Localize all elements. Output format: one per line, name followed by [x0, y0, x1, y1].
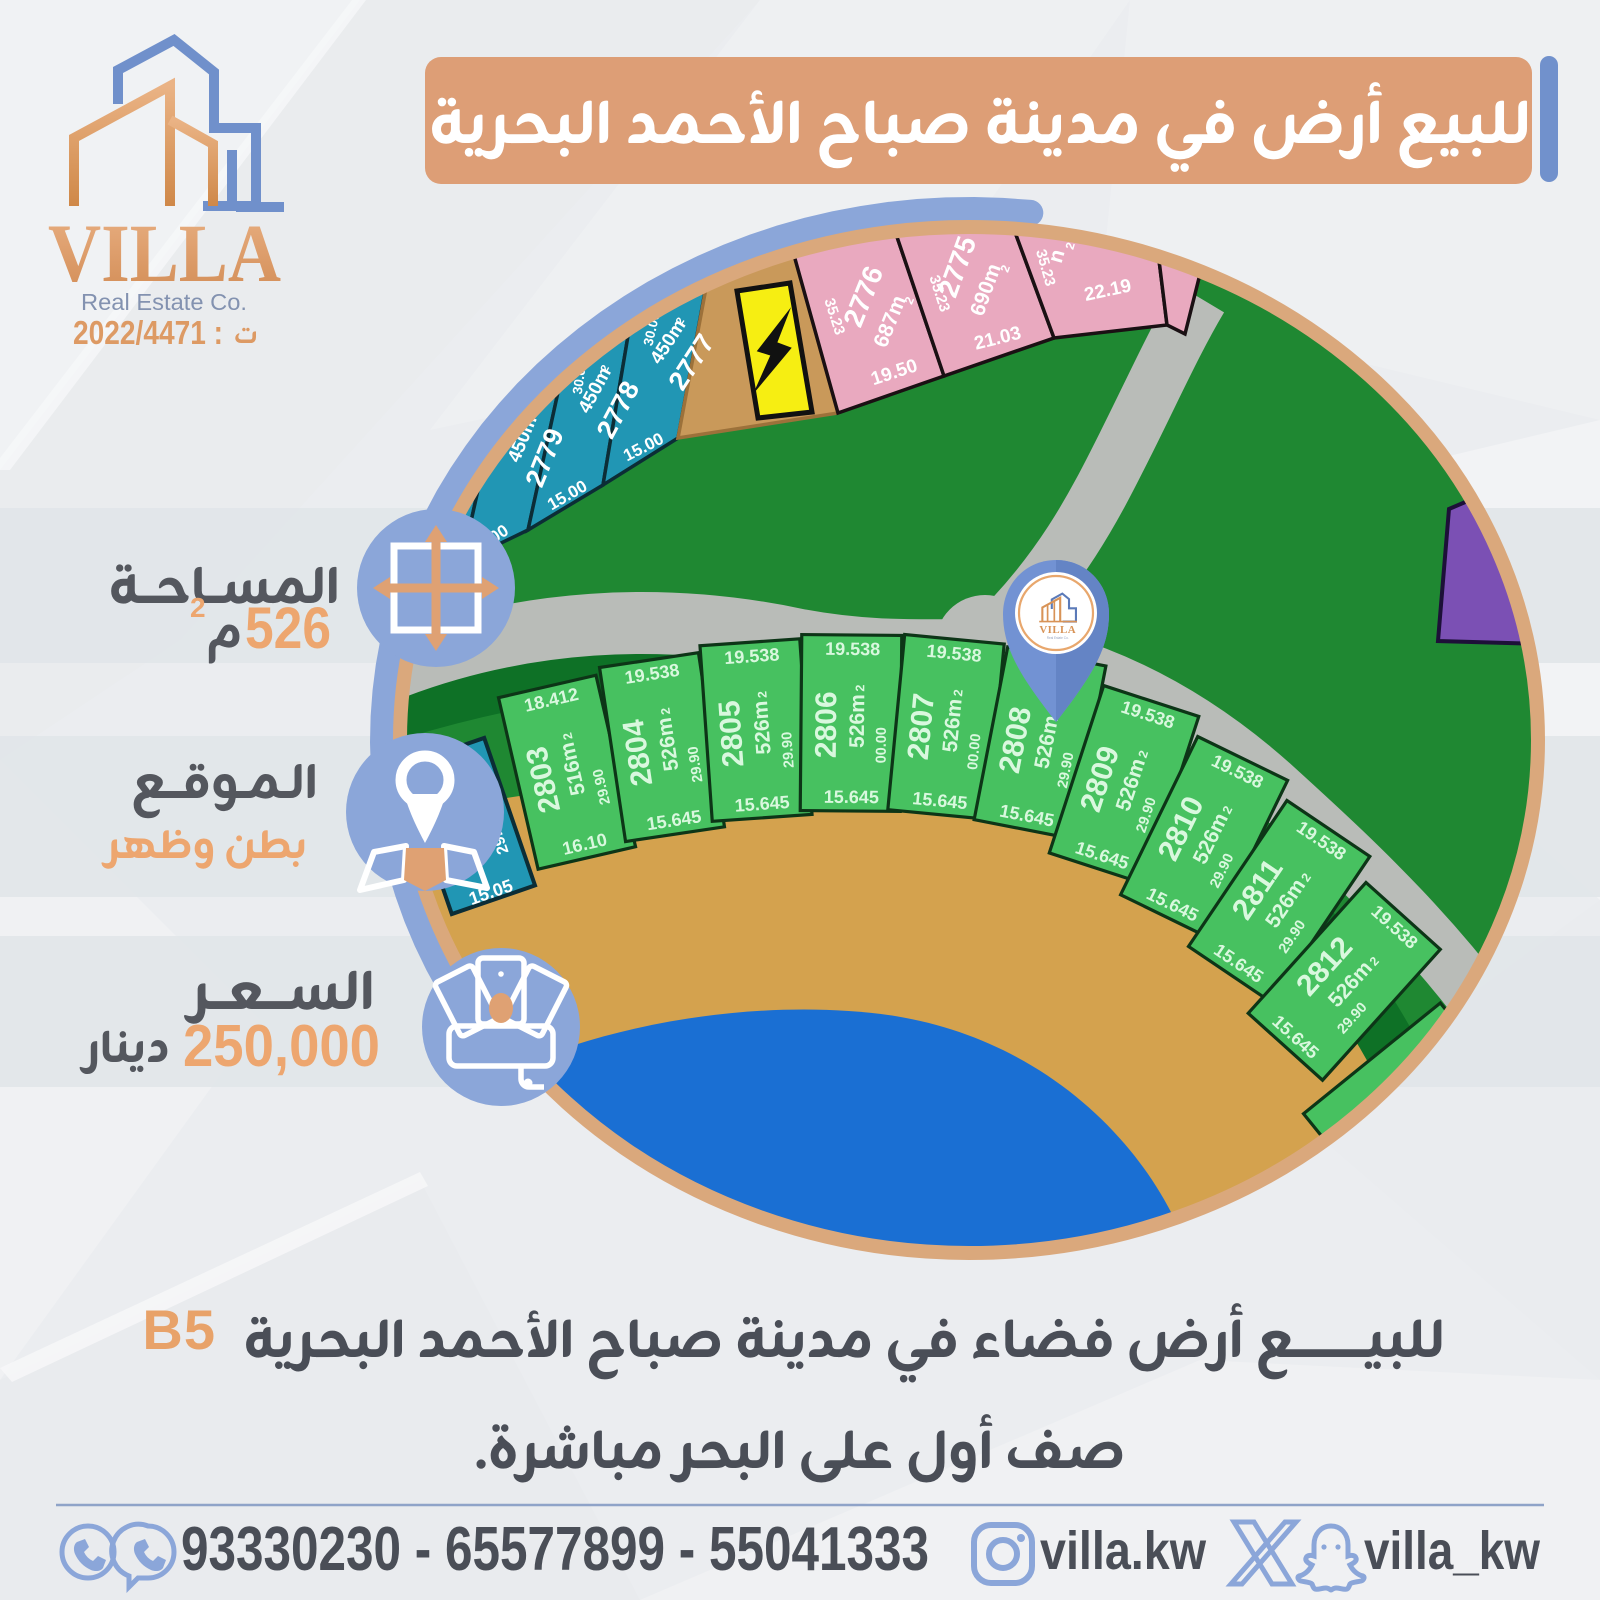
svg-text:Real Estate Co.: Real Estate Co. — [1047, 636, 1069, 640]
svg-text:526m: 526m — [846, 694, 869, 748]
svg-text:250,000: 250,000 — [183, 1013, 380, 1079]
svg-text:2: 2 — [853, 684, 867, 691]
svg-text:526m: 526m — [749, 700, 776, 755]
svg-text:VILLA: VILLA — [48, 207, 281, 299]
svg-text:B5: B5 — [142, 1298, 216, 1361]
svg-text:2806: 2806 — [810, 691, 844, 758]
svg-text:2807: 2807 — [902, 692, 941, 762]
svg-text:villa_kw: villa_kw — [1364, 1521, 1541, 1581]
svg-text:19.538: 19.538 — [724, 644, 780, 668]
svg-text:15.645: 15.645 — [824, 787, 879, 807]
svg-text:526: 526 — [245, 596, 331, 661]
svg-text:VILLA: VILLA — [1039, 624, 1076, 636]
svg-text:2: 2 — [951, 689, 966, 697]
svg-text:2022/4471 :: 2022/4471 : — [73, 314, 223, 351]
svg-text:29.90: 29.90 — [779, 731, 797, 768]
svg-text:Real Estate Co.: Real Estate Co. — [81, 289, 247, 315]
svg-text:2: 2 — [190, 592, 206, 623]
svg-text:2: 2 — [755, 691, 769, 699]
svg-text:00.00: 00.00 — [874, 727, 890, 763]
svg-text:15.645: 15.645 — [734, 792, 790, 816]
svg-text:villa.kw: villa.kw — [1040, 1521, 1207, 1581]
svg-text:2805: 2805 — [713, 699, 751, 768]
svg-text:19.538: 19.538 — [825, 639, 880, 659]
svg-text:93330230 - 65577899 - 55041333: 93330230 - 65577899 - 55041333 — [181, 1515, 929, 1584]
